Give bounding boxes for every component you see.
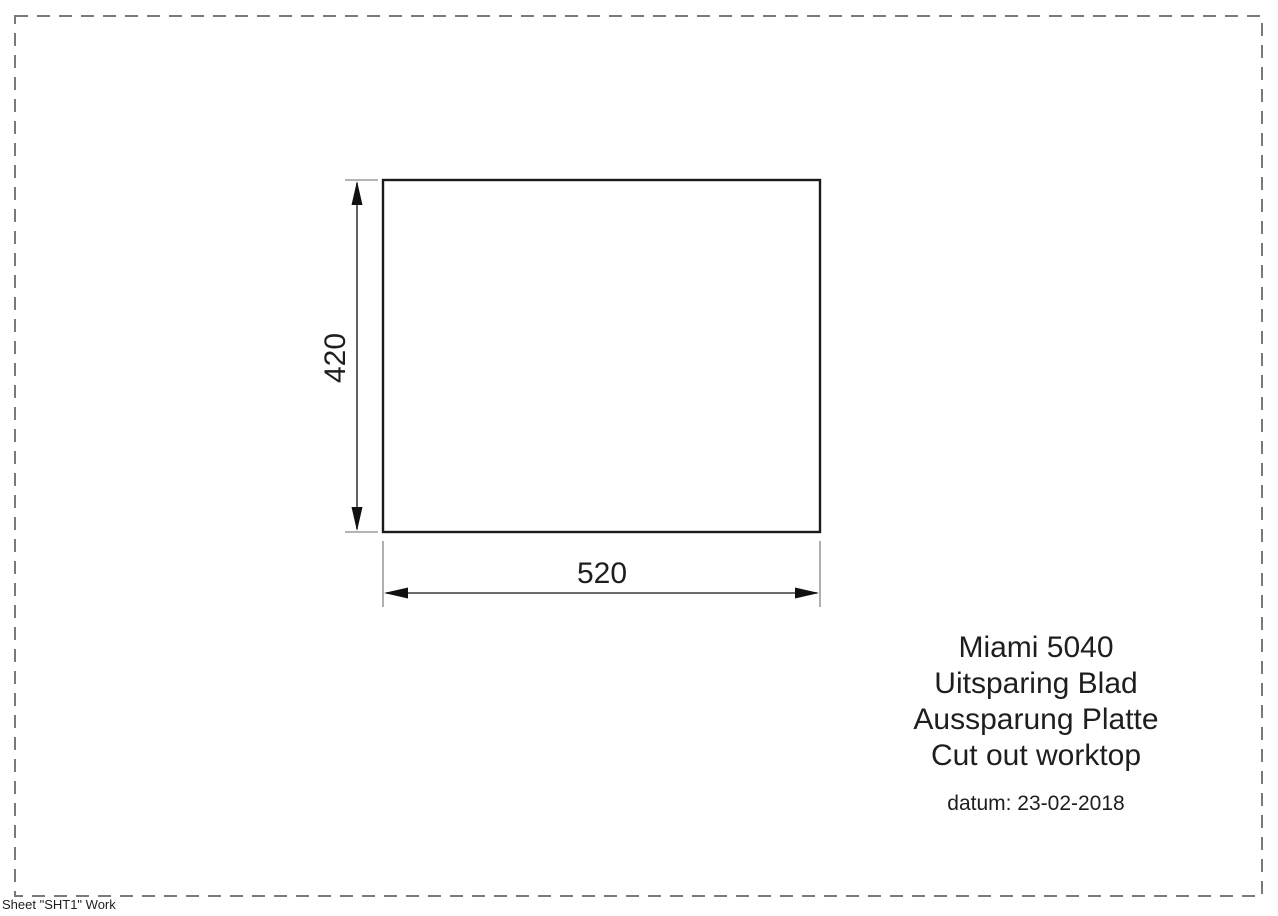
title-line-nl: Uitsparing Blad xyxy=(934,667,1137,700)
arrow-left-icon xyxy=(384,588,408,599)
sheet-label: Sheet "SHT1" Work xyxy=(2,897,116,912)
title-line-de: Aussparung Platte xyxy=(913,703,1158,736)
date-label: datum: 23-02-2018 xyxy=(947,792,1124,815)
title-block: Miami 5040 Uitsparing Blad Aussparung Pl… xyxy=(913,631,1158,815)
title-line-en: Cut out worktop xyxy=(931,739,1141,772)
arrow-up-icon xyxy=(352,181,363,205)
cutout-outline xyxy=(383,180,820,532)
drawing-sheet: 420 520 Miami 5040 Uitsparing Blad Aussp… xyxy=(0,0,1278,916)
arrow-right-icon xyxy=(795,588,819,599)
arrow-down-icon xyxy=(352,507,363,531)
dimension-arrows xyxy=(352,181,820,599)
height-dimension-label: 420 xyxy=(319,333,352,383)
extension-lines xyxy=(345,180,820,607)
width-dimension-label: 520 xyxy=(577,557,627,590)
drawing-canvas: 420 520 Miami 5040 Uitsparing Blad Aussp… xyxy=(0,0,1278,916)
title-line-product: Miami 5040 xyxy=(958,631,1113,664)
